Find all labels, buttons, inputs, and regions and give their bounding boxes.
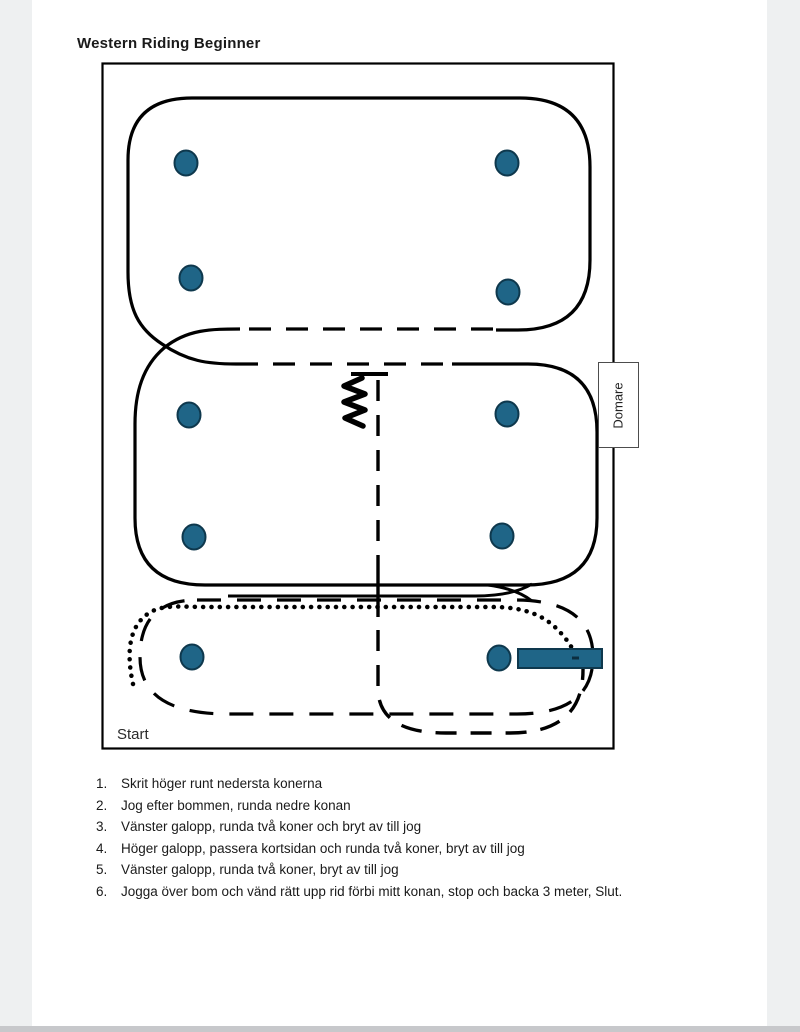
cone-marker: [175, 151, 198, 176]
instruction-text: Jog efter bommen, runda nedre konan: [112, 795, 351, 817]
viewer-bottom-strip: [0, 1026, 800, 1032]
instruction-number: 4.: [96, 838, 112, 860]
cone-markers: [175, 151, 520, 671]
cone-marker: [496, 151, 519, 176]
cone-marker: [488, 646, 511, 671]
backup-zigzag-marker: [344, 378, 365, 426]
instruction-text: Jogga över bom och vänd rätt upp rid för…: [112, 881, 622, 903]
cone-marker: [183, 525, 206, 550]
instruction-text: Skrit höger runt nedersta konerna: [112, 773, 322, 795]
instruction-text: Vänster galopp, runda två koner och bryt…: [112, 816, 421, 838]
instruction-list: 1. Skrit höger runt nedersta konerna 2. …: [96, 773, 716, 902]
start-label: Start: [117, 726, 149, 743]
bom-pole: [518, 649, 602, 668]
judge-label: Domare: [611, 382, 626, 428]
judge-box: Domare: [598, 362, 639, 448]
top-loop-lope-path-solid: [128, 98, 590, 330]
cone-marker: [491, 524, 514, 549]
cone-marker: [497, 280, 520, 305]
instruction-text: Vänster galopp, runda två koner, bryt av…: [112, 859, 399, 881]
instruction-item: 4. Höger galopp, passera kortsidan och r…: [96, 838, 716, 860]
instruction-item: 2. Jog efter bommen, runda nedre konan: [96, 795, 716, 817]
instruction-number: 5.: [96, 859, 112, 881]
cone-marker: [181, 645, 204, 670]
instruction-item: 5. Vänster galopp, runda två koner, bryt…: [96, 859, 716, 881]
inner-return-loop-dashed: [378, 630, 583, 733]
instruction-item: 1. Skrit höger runt nedersta konerna: [96, 773, 716, 795]
cone-marker: [178, 403, 201, 428]
instruction-text: Höger galopp, passera kortsidan och rund…: [112, 838, 525, 860]
middle-loop-lope-path-solid: [135, 364, 597, 585]
cone-marker: [496, 402, 519, 427]
instruction-number: 1.: [96, 773, 112, 795]
cone-marker: [180, 266, 203, 291]
instruction-number: 6.: [96, 881, 112, 903]
instruction-number: 3.: [96, 816, 112, 838]
instruction-item: 6. Jogga över bom och vänd rätt upp rid …: [96, 881, 716, 903]
instruction-item: 3. Vänster galopp, runda två koner och b…: [96, 816, 716, 838]
instruction-number: 2.: [96, 795, 112, 817]
